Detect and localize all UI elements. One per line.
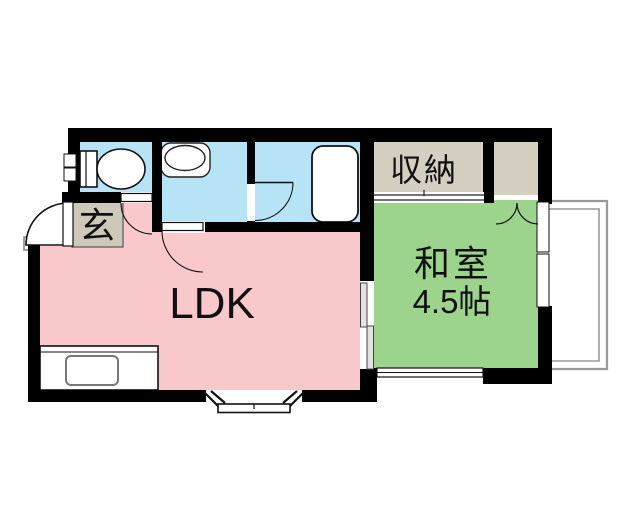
floor-plan-canvas: LDK 和室 4.5帖 収納 玄 xyxy=(0,0,640,512)
wash-basin-icon xyxy=(161,143,210,177)
toilet-window-icon xyxy=(64,154,76,181)
washitsu-sliding-door xyxy=(360,281,374,369)
kitchen-counter xyxy=(40,346,158,390)
balcony xyxy=(548,201,607,369)
ldk-label: LDK xyxy=(169,279,255,328)
south-window-icon xyxy=(377,368,483,377)
storage-label: 収納 xyxy=(390,152,458,188)
entrance-door xyxy=(26,202,73,246)
washitsu-label: 和室 xyxy=(414,243,492,284)
bathtub-icon xyxy=(312,146,358,222)
floor-plan: LDK 和室 4.5帖 収納 玄 xyxy=(0,0,640,512)
balcony-window-icon xyxy=(537,202,549,307)
washitsu-size-label: 4.5帖 xyxy=(413,283,492,320)
room-side-closet xyxy=(494,142,540,195)
bay-window xyxy=(204,391,304,413)
kitchen-sink-icon xyxy=(66,356,118,385)
toilet-icon xyxy=(80,149,145,189)
genkan-label: 玄 xyxy=(79,205,115,246)
